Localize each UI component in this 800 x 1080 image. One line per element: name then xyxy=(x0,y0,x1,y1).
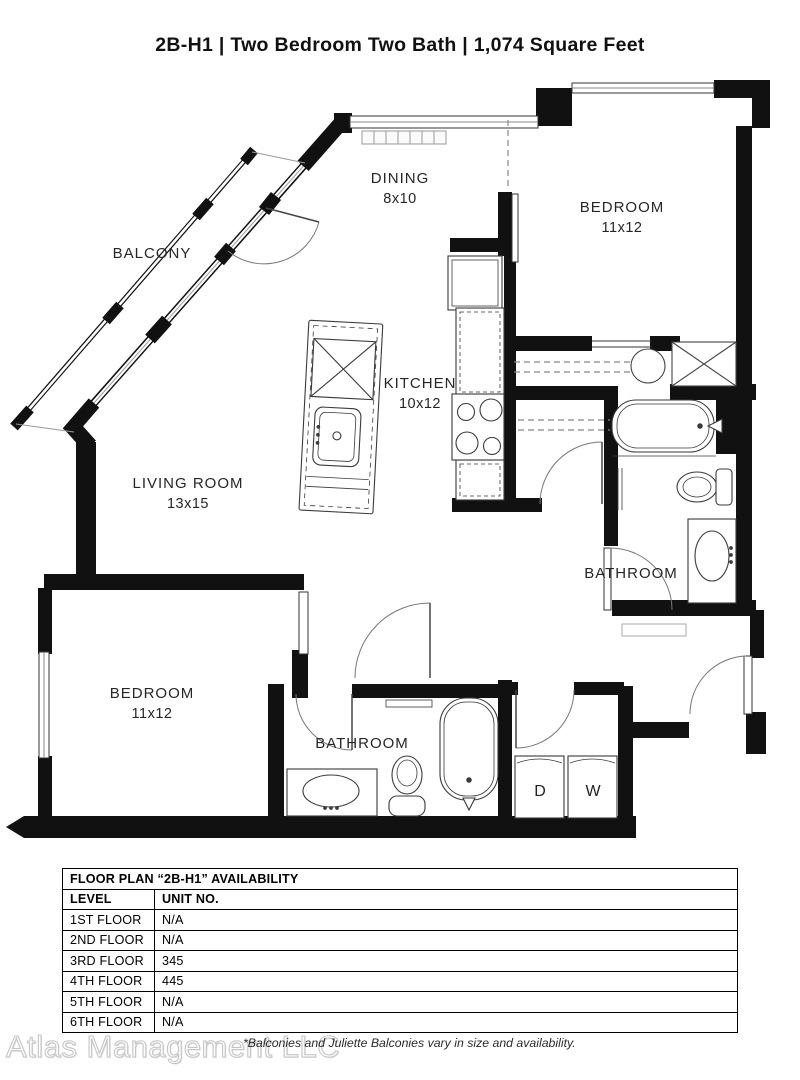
bathtub xyxy=(440,698,498,810)
unit-cell: N/A xyxy=(155,930,738,951)
refrigerator xyxy=(448,256,502,310)
table-row: 1ST FLOOR N/A xyxy=(63,910,738,931)
room-label-bathroom1: BATHROOM xyxy=(584,565,678,582)
washer-label: W xyxy=(585,783,601,800)
kitchen-island xyxy=(299,320,383,514)
room-dims-dining: 8x10 xyxy=(383,191,416,207)
unit-cell: 445 xyxy=(155,971,738,992)
room-label-balcony: BALCONY xyxy=(113,245,192,262)
table-row: 3RD FLOOR 345 xyxy=(63,951,738,972)
door-arc xyxy=(228,222,319,264)
room-dims-bedroom1: 11x12 xyxy=(602,220,643,236)
laundry: D W xyxy=(515,756,617,818)
table-row: 4TH FLOOR 445 xyxy=(63,971,738,992)
room-dims-kitchen: 10x12 xyxy=(399,396,441,412)
availability-table-title: FLOOR PLAN “2B-H1” AVAILABILITY xyxy=(63,869,738,890)
level-cell: 4TH FLOOR xyxy=(63,971,155,992)
door-arc xyxy=(690,656,746,714)
sliding-door xyxy=(299,592,308,654)
room-label-dining: DINING xyxy=(371,170,430,187)
bathtub xyxy=(612,400,722,456)
linen-closet xyxy=(672,342,736,386)
room-labels: BALCONY DINING 8x10 BEDROOM 11x12 KITCHE… xyxy=(110,170,678,752)
room-label-living: LIVING ROOM xyxy=(132,475,243,492)
availability-table-header-row: LEVEL UNIT NO. xyxy=(63,889,738,910)
unit-cell: N/A xyxy=(155,910,738,931)
room-dims-bedroom2: 11x12 xyxy=(132,706,173,722)
table-row: 2ND FLOOR N/A xyxy=(63,930,738,951)
availability-table-title-row: FLOOR PLAN “2B-H1” AVAILABILITY xyxy=(63,869,738,890)
floor-plan-drawing: D W BALCONY DINING 8x10 BEDROOM 11x12 KI… xyxy=(0,0,800,860)
sink-vanity xyxy=(287,769,377,816)
door-leaf xyxy=(744,656,752,714)
room-label-bathroom2: BATHROOM xyxy=(315,735,409,752)
room-label-bedroom1: BEDROOM xyxy=(580,199,665,216)
balcony-railing xyxy=(14,150,305,432)
table-row: 5TH FLOOR N/A xyxy=(63,992,738,1013)
room-label-bedroom2: BEDROOM xyxy=(110,685,195,702)
room-label-kitchen: KITCHEN xyxy=(384,375,457,392)
dryer-label: D xyxy=(534,783,546,800)
door-arc xyxy=(516,690,574,748)
sink-vanity xyxy=(688,519,736,603)
bathroom2-fixtures xyxy=(287,698,498,816)
kitchen-sink xyxy=(312,407,361,467)
door-leaf xyxy=(512,194,518,262)
column xyxy=(631,349,665,383)
door-arc xyxy=(540,442,602,504)
entry-shelf xyxy=(622,624,686,636)
column-header-unit: UNIT NO. xyxy=(155,889,738,910)
level-cell: 1ST FLOOR xyxy=(63,910,155,931)
door-arc xyxy=(355,603,430,678)
stove xyxy=(452,394,504,460)
unit-cell: N/A xyxy=(155,992,738,1013)
level-cell: 5TH FLOOR xyxy=(63,992,155,1013)
baseboard-heater xyxy=(362,131,446,144)
toilet xyxy=(389,756,425,816)
diagonal-window-wall xyxy=(68,124,340,446)
level-cell: 3RD FLOOR xyxy=(63,951,155,972)
room-dims-living: 13x15 xyxy=(167,496,209,512)
level-cell: 2ND FLOOR xyxy=(63,930,155,951)
towel-bar xyxy=(618,468,622,510)
sliding-door xyxy=(592,341,652,347)
balcony-disclaimer: *Balconies and Juliette Balconies vary i… xyxy=(243,1036,576,1050)
toilet xyxy=(677,469,732,505)
medicine-cabinet xyxy=(386,700,432,707)
availability-table: FLOOR PLAN “2B-H1” AVAILABILITY LEVEL UN… xyxy=(62,868,738,1033)
floor-plan-page: 2B-H1 | Two Bedroom Two Bath | 1,074 Squ… xyxy=(0,0,800,1080)
unit-cell: 345 xyxy=(155,951,738,972)
column-header-level: LEVEL xyxy=(63,889,155,910)
